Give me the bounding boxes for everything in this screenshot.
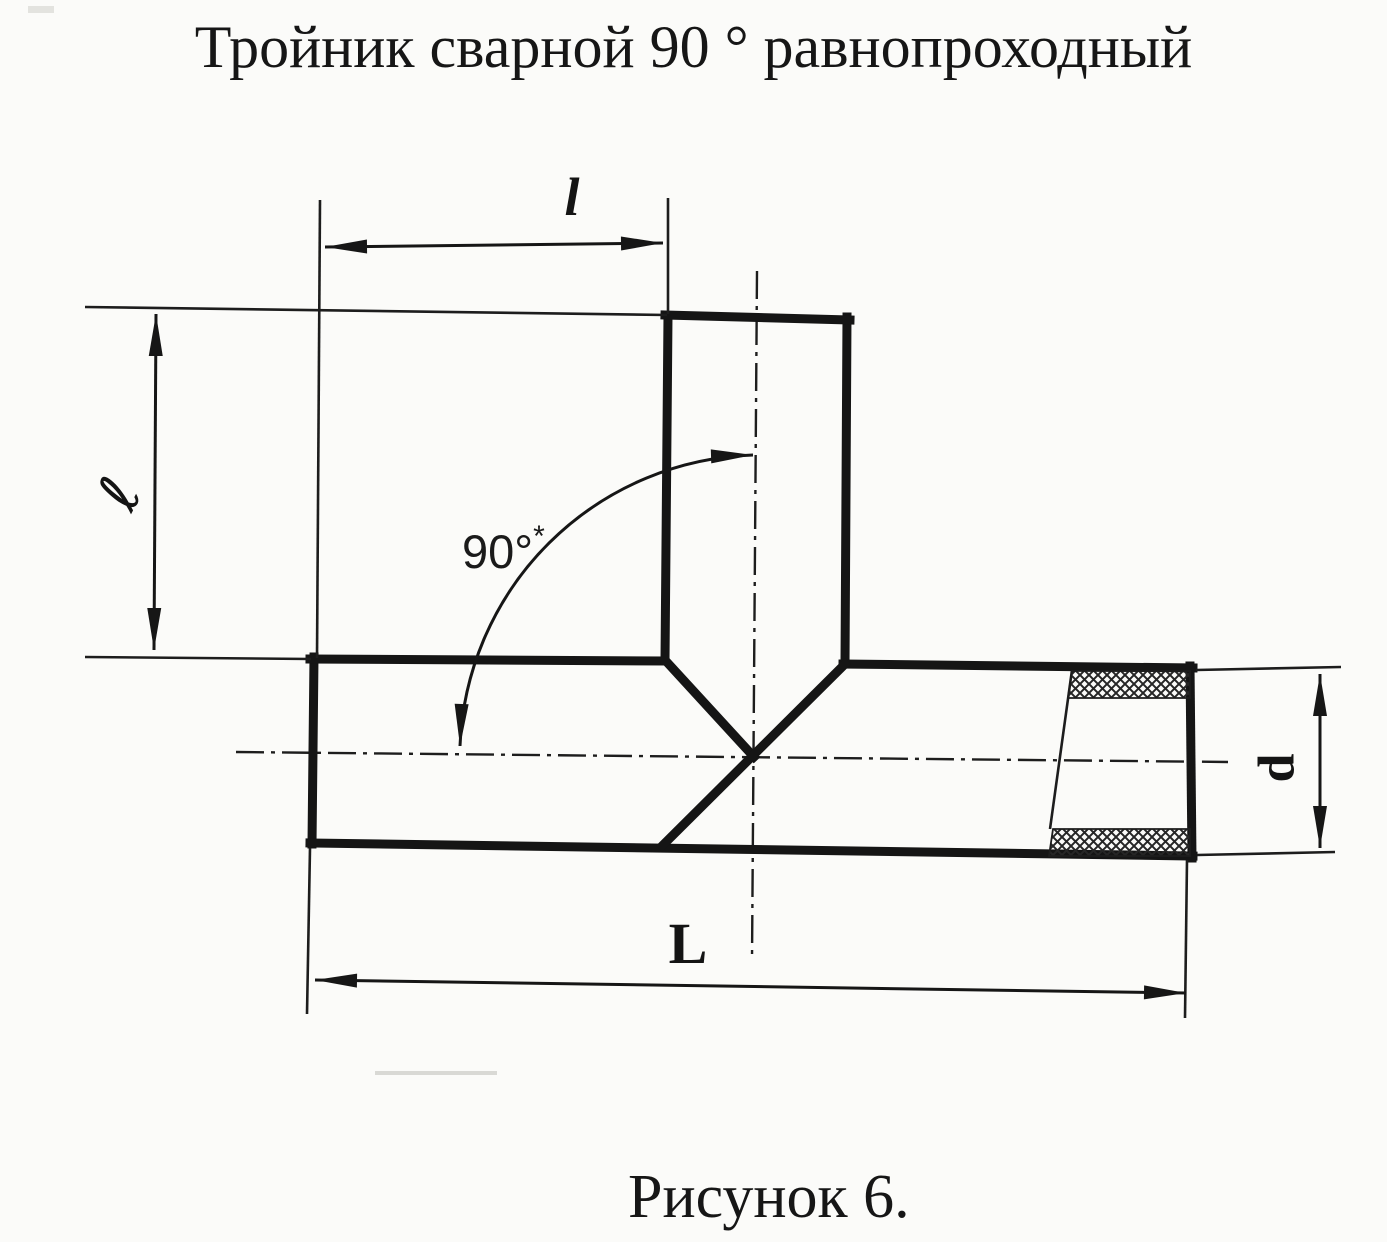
extension-line-L-left (307, 848, 310, 1014)
extension-line-d-bottom (1197, 852, 1335, 855)
branch-pipe-left-wall (665, 316, 668, 660)
branch-pipe-right-wall (845, 317, 847, 664)
branch-pipe-top-end (665, 315, 850, 320)
label-diameter: d (1249, 753, 1306, 782)
main-pipe-left-end (312, 657, 314, 844)
label-angle-value: 90° (462, 525, 533, 578)
weld-seam-left (665, 660, 754, 757)
label-angle-note: * (533, 520, 545, 553)
scanned-drawing-page: Тройник сварной 90 ° равнопроходный (0, 0, 1387, 1242)
extension-line-l-left (317, 200, 320, 658)
vertical-centerline (752, 271, 757, 960)
dimension-line-l (325, 243, 663, 247)
dimension-line-L (315, 980, 1186, 993)
label-angle: 90°* (462, 520, 545, 578)
label-overall-length: L (669, 911, 708, 976)
section-hatch-bottom (1049, 829, 1190, 856)
figure-caption: Рисунок 6. (628, 1162, 910, 1233)
tee-fitting-diagram: l ℓ 90°* L d (0, 0, 1387, 1242)
dimension-line-ell (154, 314, 156, 650)
extension-line-ell-bottom (85, 657, 311, 659)
section-hatch-top (1068, 671, 1190, 698)
extension-line-ell-top (85, 307, 667, 315)
main-pipe-top-right (843, 664, 1193, 668)
horizontal-centerline (236, 752, 1228, 762)
main-pipe-top-left (310, 659, 663, 661)
label-branch-length-top: l (564, 167, 579, 227)
label-branch-length-left: ℓ (83, 467, 155, 521)
extension-line-d-top (1196, 667, 1341, 670)
